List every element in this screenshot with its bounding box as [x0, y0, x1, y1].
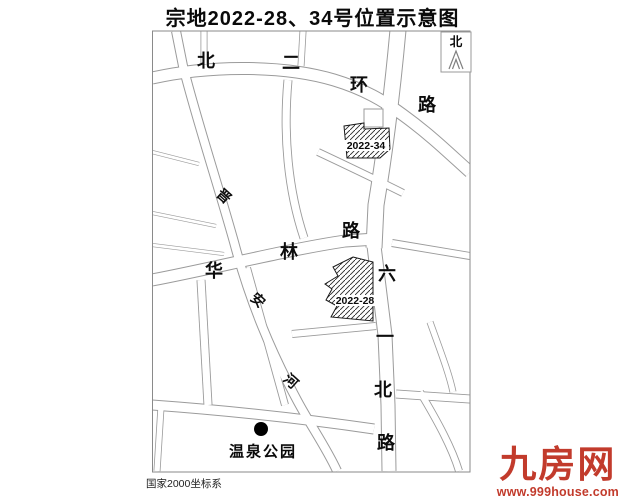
- park-dot: [254, 422, 268, 436]
- north-box: 北: [441, 32, 471, 72]
- parcel-2022-28-shape: [325, 257, 373, 321]
- watermark-brand: 九房网: [497, 447, 619, 484]
- parcel-2022-28-label: 2022-28: [336, 295, 375, 307]
- watermark: 九房网 www.999house.com: [497, 447, 619, 499]
- parcel-2022-34-label: 2022-34: [347, 140, 386, 152]
- coordinate-system-note: 国家2000坐标系: [146, 476, 222, 491]
- small-block: [364, 109, 383, 127]
- watermark-website: www.999house.com: [497, 486, 619, 499]
- north-label: 北: [450, 34, 463, 49]
- parcel-2022-34: 2022-34: [343, 123, 390, 158]
- park-label: 温泉公园: [229, 441, 297, 462]
- map: 2022-34 2022-28 北: [0, 0, 625, 500]
- parcel-2022-28: 2022-28: [325, 257, 375, 321]
- roads-fill: [152, 30, 470, 471]
